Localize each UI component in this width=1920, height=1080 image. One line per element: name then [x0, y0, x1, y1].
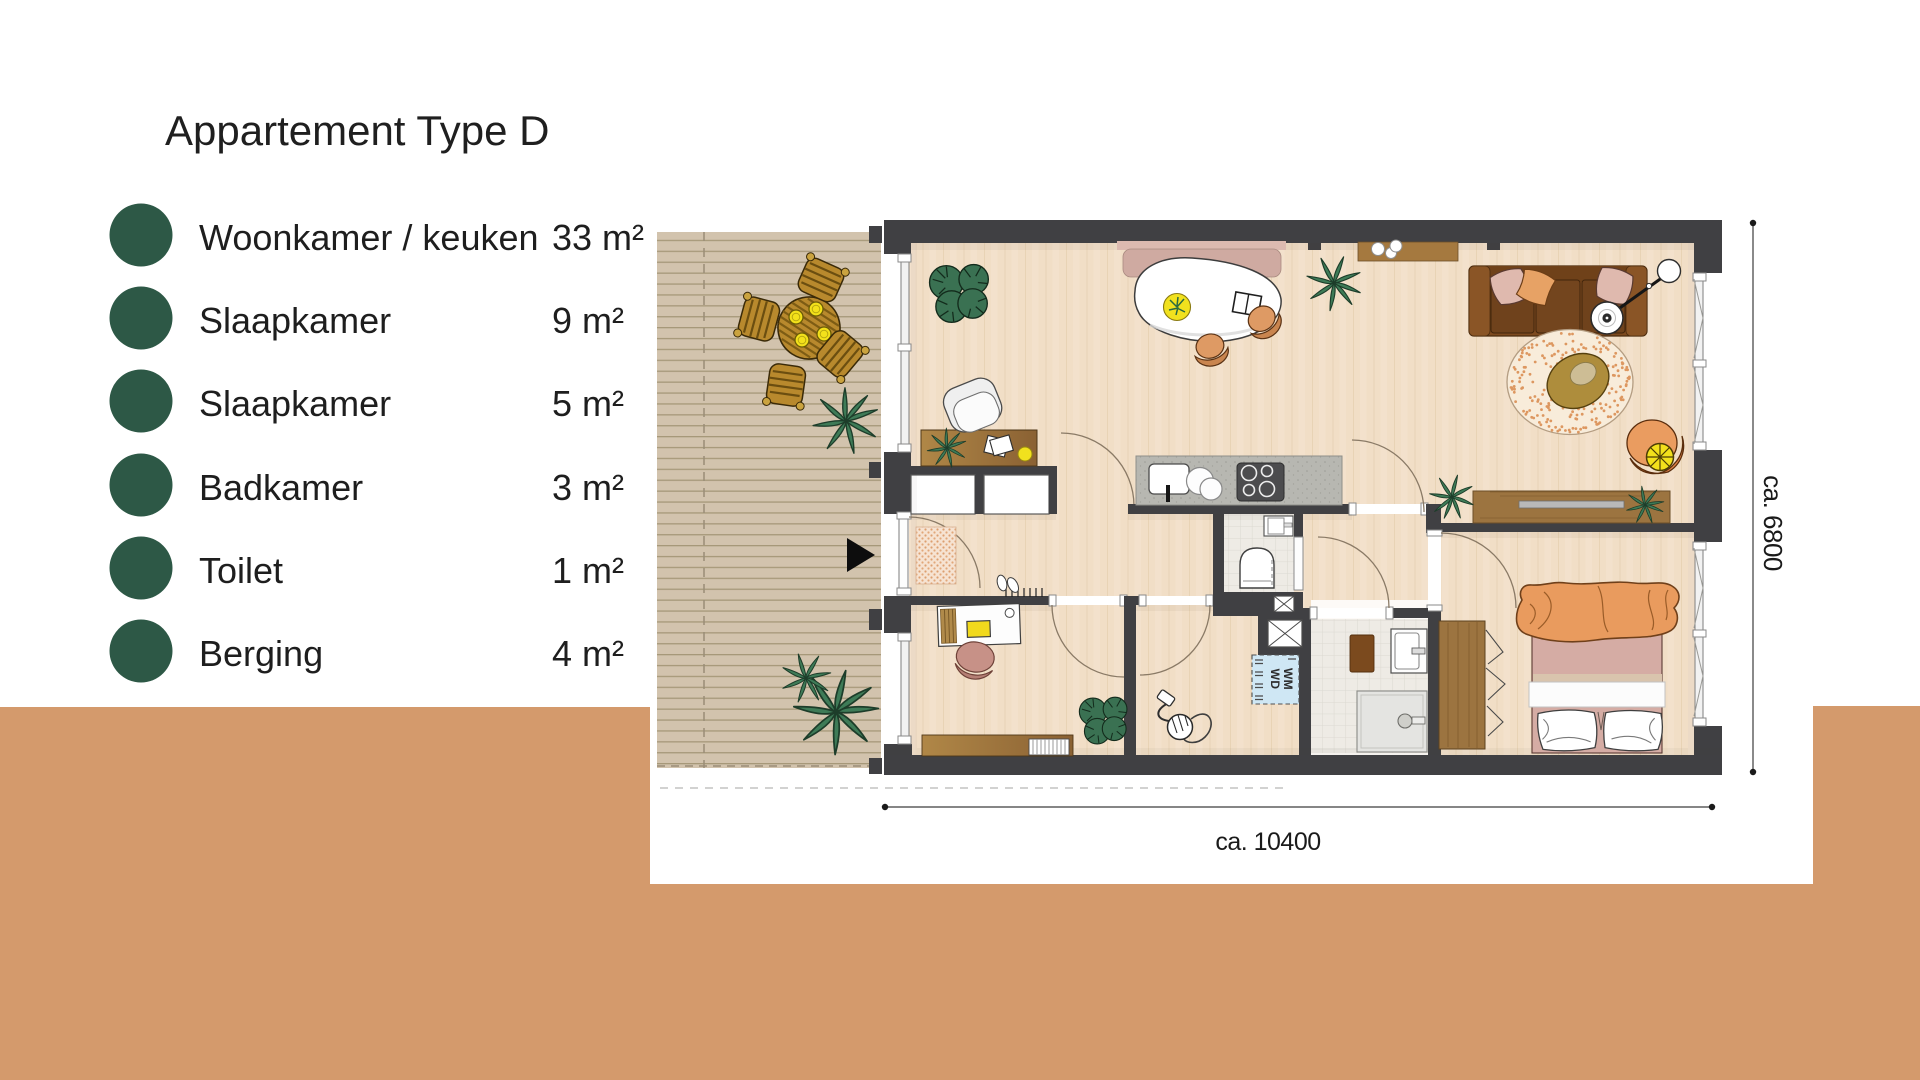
svg-text:Woonkamer / keuken: Woonkamer / keuken: [199, 217, 539, 258]
svg-text:ca. 10400: ca. 10400: [1215, 828, 1320, 856]
svg-text:4 m²: 4 m²: [552, 633, 624, 674]
svg-text:Slaapkamer: Slaapkamer: [199, 383, 391, 424]
svg-text:WM: WM: [1281, 668, 1295, 690]
svg-text:Slaapkamer: Slaapkamer: [199, 300, 391, 341]
svg-text:3 m²: 3 m²: [552, 467, 624, 508]
svg-text:ca. 6800: ca. 6800: [1758, 475, 1788, 571]
svg-text:WD: WD: [1268, 669, 1282, 690]
svg-text:Toilet: Toilet: [199, 550, 283, 591]
svg-text:Badkamer: Badkamer: [199, 467, 363, 508]
svg-text:33 m²: 33 m²: [552, 217, 644, 258]
svg-text:9 m²: 9 m²: [552, 300, 624, 341]
svg-text:5 m²: 5 m²: [552, 383, 624, 424]
svg-text:Appartement Type D: Appartement Type D: [165, 107, 549, 154]
svg-text:1 m²: 1 m²: [552, 550, 624, 591]
svg-text:Berging: Berging: [199, 633, 323, 674]
